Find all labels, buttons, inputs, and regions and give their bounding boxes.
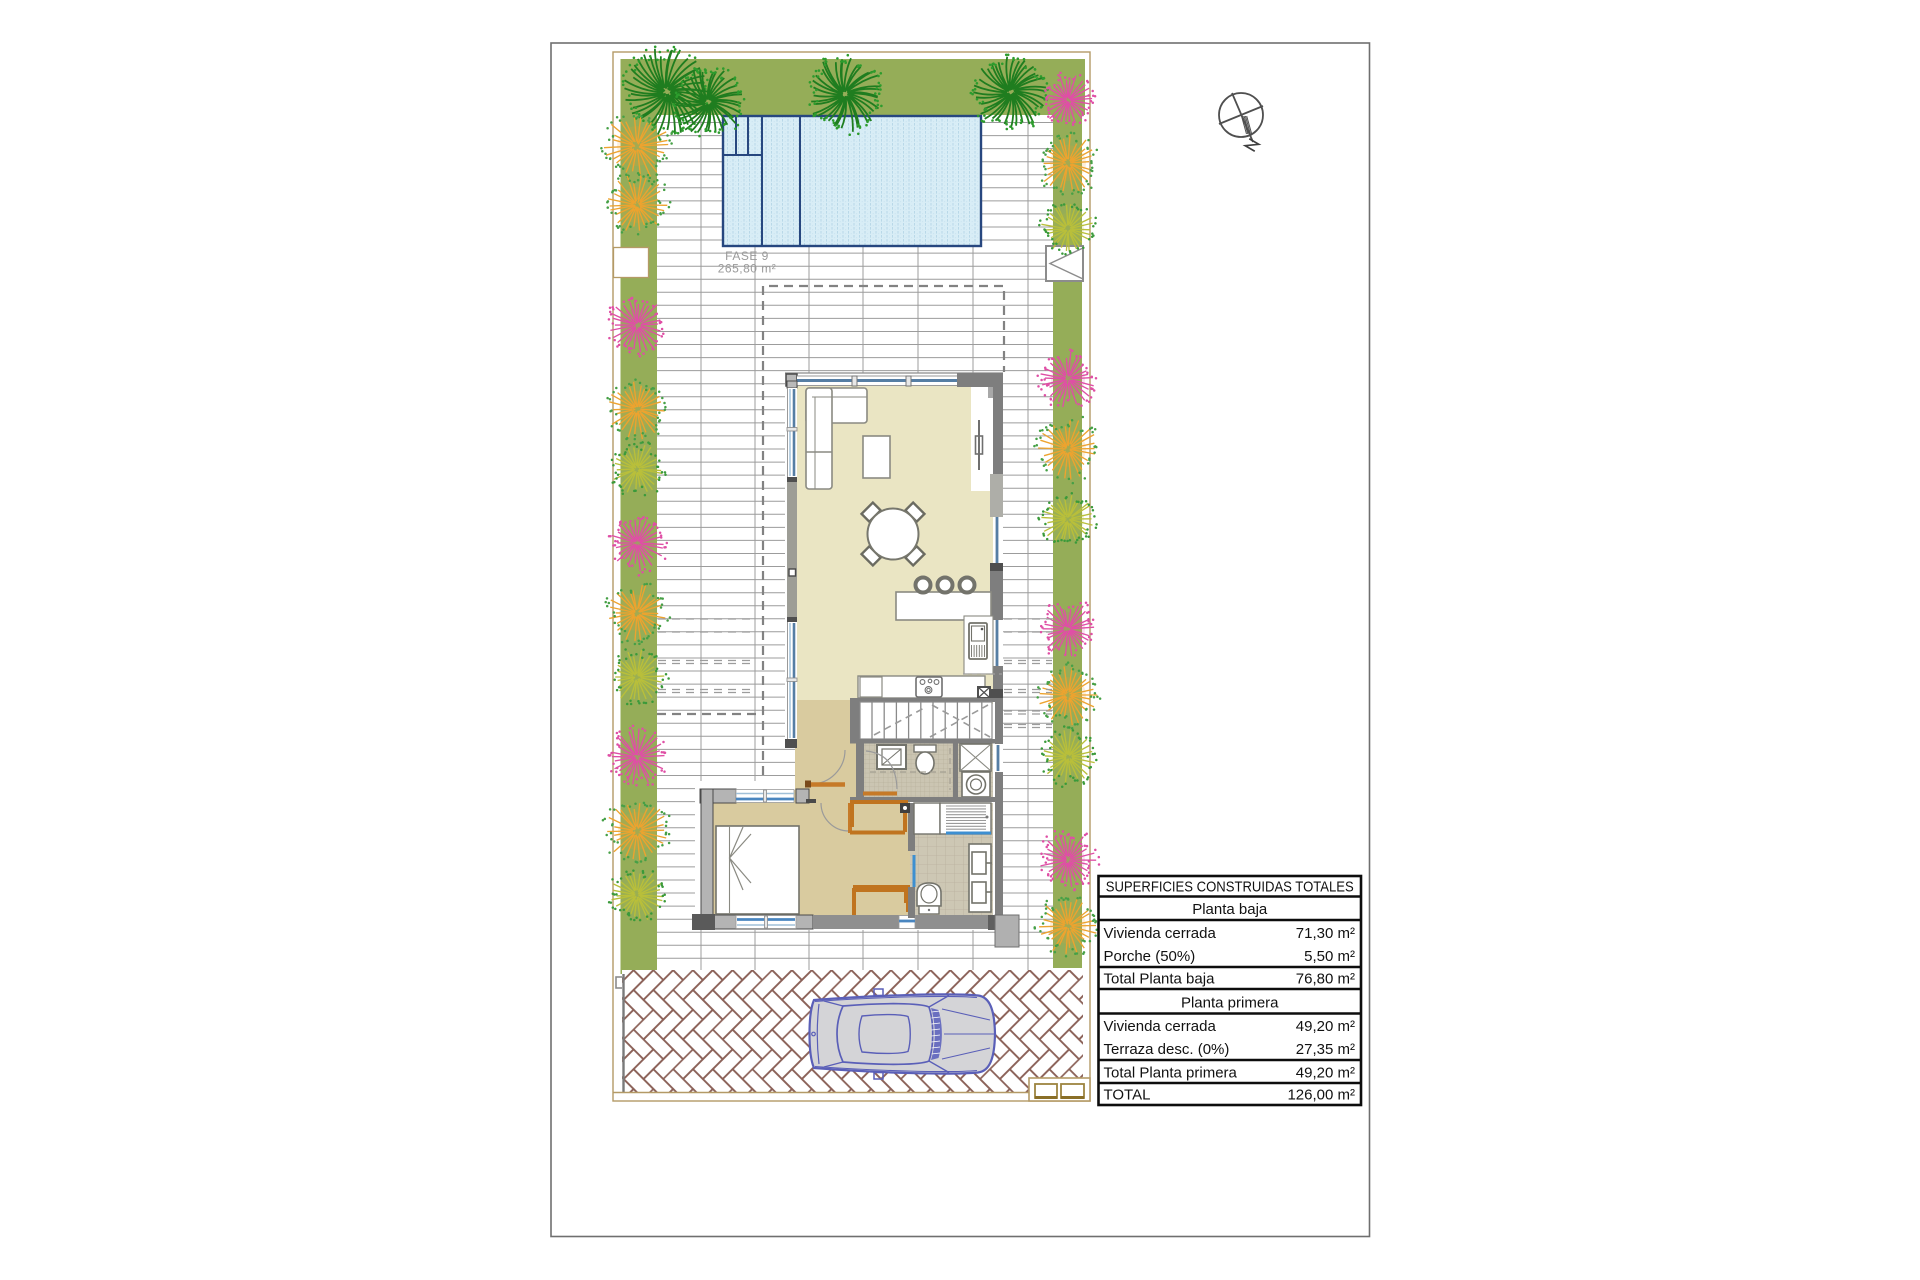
svg-text:Total Planta primera: Total Planta primera	[1104, 1065, 1238, 1082]
svg-text:49,20 m²: 49,20 m²	[1296, 1018, 1355, 1035]
svg-text:Total Planta baja: Total Planta baja	[1104, 971, 1216, 988]
svg-text:27,35 m²: 27,35 m²	[1296, 1041, 1355, 1058]
svg-text:TOTAL: TOTAL	[1104, 1087, 1151, 1104]
svg-text:49,20 m²: 49,20 m²	[1296, 1065, 1355, 1082]
svg-text:Vivienda cerrada: Vivienda cerrada	[1104, 1018, 1217, 1035]
svg-text:Terraza desc. (0%): Terraza desc. (0%)	[1104, 1041, 1230, 1058]
svg-text:Vivienda cerrada: Vivienda cerrada	[1104, 925, 1217, 942]
svg-text:Porche (50%): Porche (50%)	[1104, 948, 1196, 965]
svg-text:Planta primera: Planta primera	[1181, 995, 1279, 1012]
svg-text:126,00 m²: 126,00 m²	[1287, 1087, 1355, 1104]
svg-text:SUPERFICIES CONSTRUIDAS TOTALE: SUPERFICIES CONSTRUIDAS TOTALES	[1106, 879, 1354, 896]
svg-text:76,80 m²: 76,80 m²	[1296, 971, 1355, 988]
svg-text:71,30 m²: 71,30 m²	[1296, 925, 1355, 942]
svg-text:Planta baja: Planta baja	[1192, 901, 1268, 918]
svg-text:265,80 m²: 265,80 m²	[718, 262, 777, 276]
svg-text:5,50 m²: 5,50 m²	[1304, 948, 1355, 965]
